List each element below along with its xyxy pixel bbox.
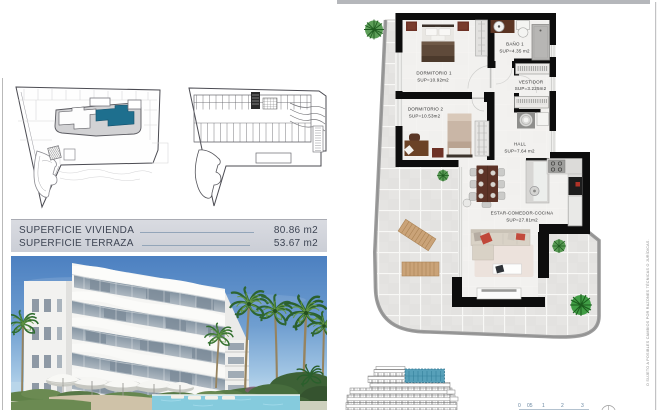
- svg-text:2: 2: [561, 403, 564, 409]
- svg-text:0: 0: [518, 403, 521, 409]
- svg-text:DORMITORIO 2: DORMITORIO 2: [408, 107, 444, 112]
- svg-text:VESTIDOR: VESTIDOR: [519, 80, 544, 85]
- svg-text:SUP=7.64 m2: SUP=7.64 m2: [504, 149, 535, 154]
- svg-text:1: 1: [542, 403, 545, 409]
- svg-text:BAÑO 1: BAÑO 1: [506, 41, 524, 47]
- svg-text:3: 3: [581, 403, 584, 409]
- svg-text:HALL: HALL: [514, 142, 526, 147]
- svg-text:SUP=3.225m2: SUP=3.225m2: [515, 86, 547, 91]
- svg-text:SUP=4.35 m2: SUP=4.35 m2: [499, 49, 530, 54]
- svg-text:ESTAR-COMEDOR-COCINA: ESTAR-COMEDOR-COCINA: [491, 211, 554, 216]
- svg-text:SUP=27.81m2: SUP=27.81m2: [506, 218, 538, 223]
- svg-text:DORMITORIO 1: DORMITORIO 1: [416, 71, 452, 76]
- svg-text:SUP=10.53m2: SUP=10.53m2: [409, 114, 441, 119]
- svg-text:O SUJETO A POSIBLES CAMBIOS PO: O SUJETO A POSIBLES CAMBIOS POR RAZONES …: [645, 239, 650, 386]
- svg-text:05: 05: [527, 403, 533, 409]
- svg-text:SUP=10.92m2: SUP=10.92m2: [417, 78, 449, 83]
